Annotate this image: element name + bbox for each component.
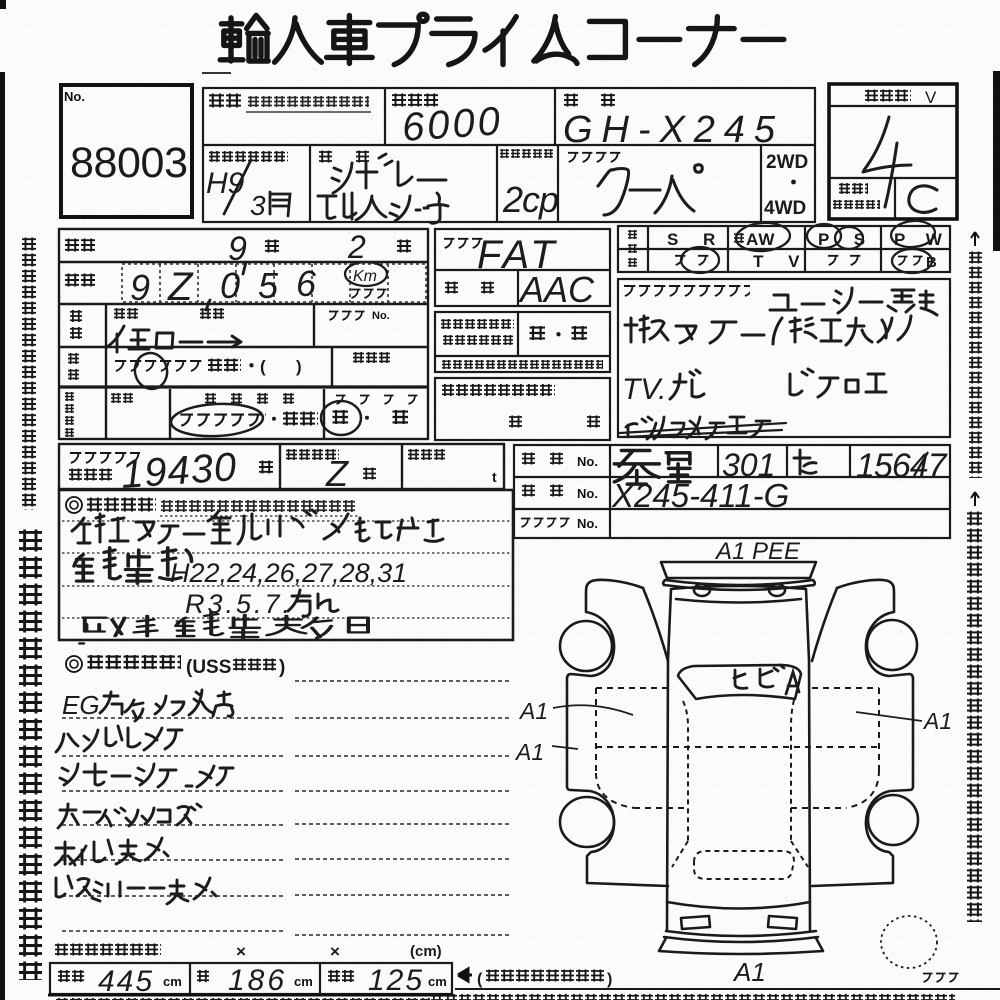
- svg-text:445: 445: [98, 965, 154, 998]
- svg-text:EG: EG: [62, 690, 100, 720]
- svg-text:No.: No.: [372, 310, 390, 322]
- svg-text:No.: No.: [577, 516, 598, 531]
- svg-text:2cp: 2cp: [502, 179, 558, 220]
- svg-text:(: (: [477, 971, 483, 988]
- svg-text:A1: A1: [518, 698, 548, 724]
- svg-text:6: 6: [296, 263, 317, 304]
- svg-text:No.: No.: [64, 89, 85, 104]
- svg-text:88003: 88003: [70, 139, 188, 187]
- svg-text:3: 3: [250, 190, 266, 221]
- svg-text:): ): [279, 657, 285, 678]
- svg-text:cm: cm: [428, 974, 447, 989]
- svg-text:TV.: TV.: [622, 373, 666, 406]
- svg-text:cm: cm: [163, 974, 182, 989]
- svg-text:P S: P S: [818, 230, 875, 249]
- svg-text:No.: No.: [577, 454, 598, 469]
- svg-text:cm: cm: [294, 974, 313, 989]
- svg-text:R3.5.7.: R3.5.7.: [185, 589, 293, 619]
- svg-text:186: 186: [228, 964, 287, 997]
- svg-text:): ): [607, 971, 612, 988]
- svg-text:Z: Z: [167, 265, 194, 309]
- svg-text:AAC: AAC: [518, 269, 595, 310]
- svg-text:t: t: [492, 469, 497, 485]
- svg-text:A1: A1: [514, 739, 544, 765]
- svg-text:×: ×: [330, 942, 340, 961]
- svg-text:X245-411-G: X245-411-G: [611, 477, 789, 514]
- svg-text:AW: AW: [746, 230, 775, 249]
- svg-text:): ): [296, 357, 302, 376]
- svg-text:×: ×: [236, 942, 246, 961]
- svg-text:0: 0: [220, 265, 240, 306]
- svg-text:15647: 15647: [856, 447, 948, 485]
- svg-text:・: ・: [784, 173, 803, 194]
- svg-text:(cm): (cm): [410, 943, 442, 960]
- svg-text:T V: T V: [753, 252, 809, 271]
- svg-text:2: 2: [347, 229, 366, 265]
- svg-text:H22,24,26,27,28,31: H22,24,26,27,28,31: [170, 558, 407, 588]
- svg-text:Z: Z: [325, 453, 349, 494]
- svg-text:9: 9: [130, 267, 150, 308]
- svg-text:・: ・: [550, 326, 567, 345]
- svg-text:A1: A1: [922, 708, 952, 734]
- svg-text:V: V: [925, 88, 937, 107]
- svg-text:・(: ・(: [243, 357, 266, 376]
- svg-text:6000: 6000: [401, 99, 505, 150]
- svg-text:4WD: 4WD: [764, 198, 806, 219]
- svg-text:5: 5: [258, 265, 279, 306]
- svg-text:A1: A1: [732, 957, 766, 987]
- svg-text:A1 PEE: A1 PEE: [714, 538, 801, 565]
- svg-text:No.: No.: [577, 486, 598, 501]
- svg-text:2WD: 2WD: [766, 152, 808, 173]
- svg-text:125: 125: [368, 964, 424, 997]
- svg-text:(USS: (USS: [186, 657, 231, 678]
- svg-text:9: 9: [228, 230, 247, 268]
- svg-text:Km: Km: [353, 268, 377, 285]
- svg-text:・: ・: [266, 412, 282, 429]
